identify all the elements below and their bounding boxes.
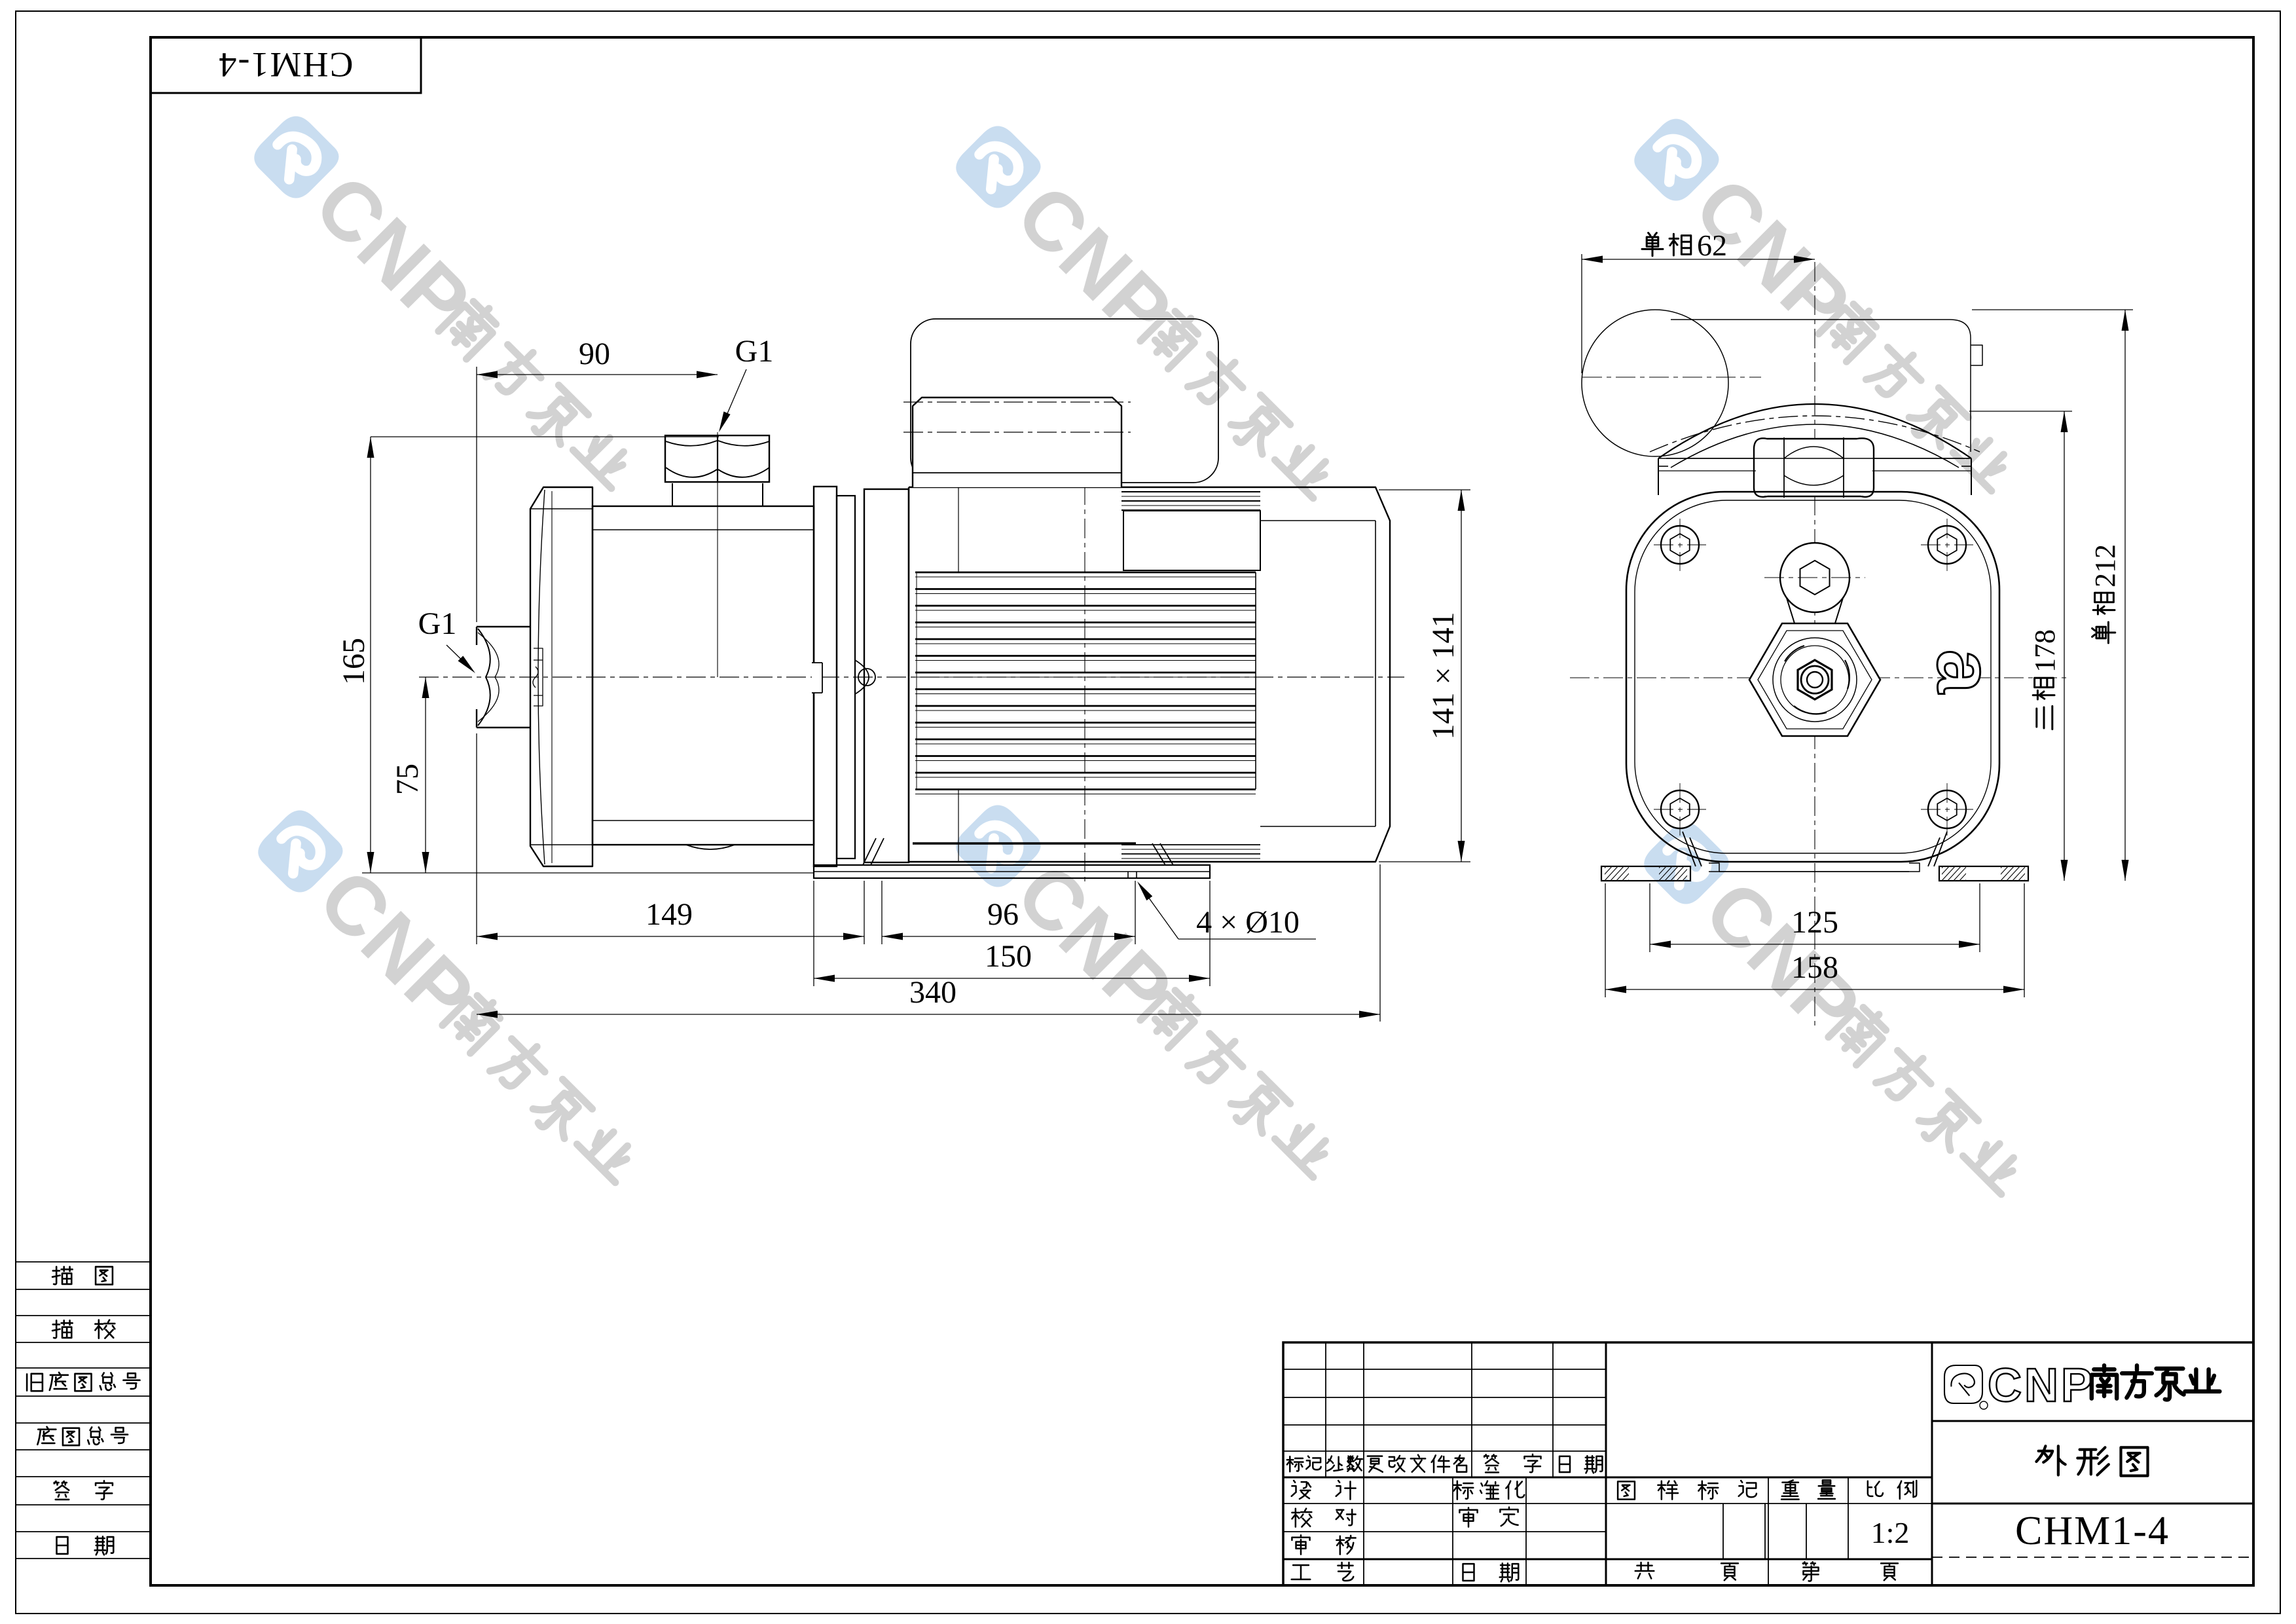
svg-text:1:2: 1:2: [1871, 1516, 1910, 1549]
svg-text:CHM1-4: CHM1-4: [217, 45, 353, 84]
svg-text:G1: G1: [418, 606, 457, 641]
svg-text:178: 178: [2029, 629, 2061, 673]
svg-text:CHM1-4: CHM1-4: [2015, 1509, 2170, 1553]
svg-text:141 × 141: 141 × 141: [1426, 612, 1461, 739]
svg-text:125: 125: [1791, 905, 1838, 940]
svg-text:G1: G1: [735, 334, 774, 369]
svg-text:CNP: CNP: [1988, 1359, 2095, 1412]
svg-text:96: 96: [987, 897, 1019, 932]
svg-text:149: 149: [646, 897, 693, 932]
svg-text:90: 90: [579, 337, 610, 371]
svg-text:62: 62: [1697, 229, 1727, 262]
svg-text:340: 340: [909, 975, 957, 1010]
svg-text:212: 212: [2089, 544, 2121, 587]
svg-text:a: a: [1921, 650, 2009, 694]
svg-text:75: 75: [390, 764, 425, 795]
svg-text:150: 150: [985, 939, 1032, 974]
svg-text:165: 165: [337, 638, 371, 685]
svg-text:4 × Ø10: 4 × Ø10: [1196, 905, 1300, 940]
svg-text:158: 158: [1791, 950, 1838, 985]
